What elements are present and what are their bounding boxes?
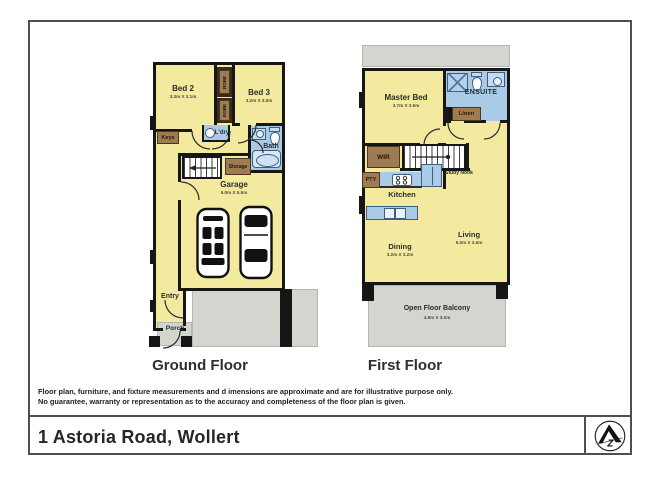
room-dims-bed2: 3.3m X 3.1m [170,95,197,100]
driveway-area [192,289,318,347]
keys-cupboard: Keys [157,131,179,144]
garage-side-pier [280,289,292,347]
cooktop-icon [392,174,412,186]
robe-cupboard: ROBE [217,67,232,97]
roof-area [362,45,510,67]
wall [153,62,156,331]
pantry-cupboard: PTY [362,172,380,188]
room-label-garage: Garage [220,181,248,189]
ground-floor-title: Ground Floor [152,358,248,373]
storage-label: Storage [229,164,248,170]
keys-label: Keys [161,135,174,141]
pantry-label: PTY [366,177,377,183]
linen-cupboard: Linen [452,107,481,121]
footer-divider [28,415,632,417]
room-dims-living: 5.0m X 3.6m [456,241,483,246]
wall [507,68,510,285]
disclaimer-line1: Floor plan, furniture, and fixture measu… [38,387,603,397]
porch-pillar-left [149,336,160,347]
wall [444,107,452,121]
wall [183,288,186,326]
wall [178,156,181,182]
porch-pillar-right [181,336,192,347]
robe-label: ROBE [219,100,230,121]
wir-cupboard: WIR [367,146,400,168]
wall [362,68,510,71]
window-mark [359,196,363,214]
bathtub-icon [252,150,281,168]
page-title: 1 Astoria Road, Wollert [38,427,240,448]
wall [248,170,285,173]
room-dims-balcony: 4.9m X 3.0m [424,316,451,321]
vanity-sink-icon [487,72,505,87]
room-label-ensuite: ENSUITE [465,89,497,96]
window-mark [150,300,154,312]
linen-label: Linen [459,111,474,117]
robe-label: ROBE [219,70,230,94]
room-label-bath: Bath [263,143,279,150]
wall [500,120,507,123]
room-label-dining: Dining [388,243,411,251]
room-dims-garage: 6.0m X 5.5m [221,191,248,196]
floor-plan-page: ROBE ROBE Keys Storage [0,0,660,477]
wir-label: WIR [377,154,390,161]
fridge-icon [421,164,442,187]
basin-icon [256,130,264,138]
car-icon [196,207,230,279]
logo-icon: Z [590,419,630,453]
car-icon [239,205,273,280]
room-label-master: Master Bed [384,94,427,102]
room-label-bed3: Bed 3 [248,89,270,97]
room-label-balcony: Open Floor Balcony [404,305,471,312]
window-mark [150,250,154,264]
wall [466,143,469,171]
robe-cupboard: ROBE [217,98,232,123]
room-dims-bed3: 3.2m X 3.0m [246,99,273,104]
logo-letter: Z [606,439,614,450]
room-label-porch: Porch [166,326,184,333]
window-mark [359,92,363,108]
disclaimer: Floor plan, furniture, and fixture measu… [38,387,603,407]
wall [362,282,510,285]
wall [178,200,181,291]
logo-cell-divider [584,417,586,453]
stairs-ground [182,156,222,179]
wall [178,288,285,291]
window-mark [150,116,154,130]
storage-cupboard: Storage [225,158,251,175]
first-floor-title: First Floor [368,358,442,373]
wall [232,65,235,123]
room-dims-master: 3.7m X 3.6m [393,104,420,109]
laundry-sink-icon [205,128,215,138]
wall [153,62,285,65]
island-sink-icon [384,208,395,219]
room-label-kitchen: Kitchen [388,191,416,199]
balcony-pillar-right [496,283,508,299]
balcony-pillar-left [362,285,374,301]
room-label-study-nook: Study Nook [445,171,473,176]
room-label-entry: Entry [161,293,179,300]
wall [232,123,240,126]
wall [282,62,285,291]
room-label-living: Living [458,231,480,239]
room-label-bed2: Bed 2 [172,85,194,93]
island-sink-icon [395,208,406,219]
room-dims-dining: 3.2m X 3.2m [387,253,414,258]
room-label-laundry: L'dry [215,130,229,136]
wall [153,328,163,331]
disclaimer-line2: No guarantee, warranty or representation… [38,397,603,407]
